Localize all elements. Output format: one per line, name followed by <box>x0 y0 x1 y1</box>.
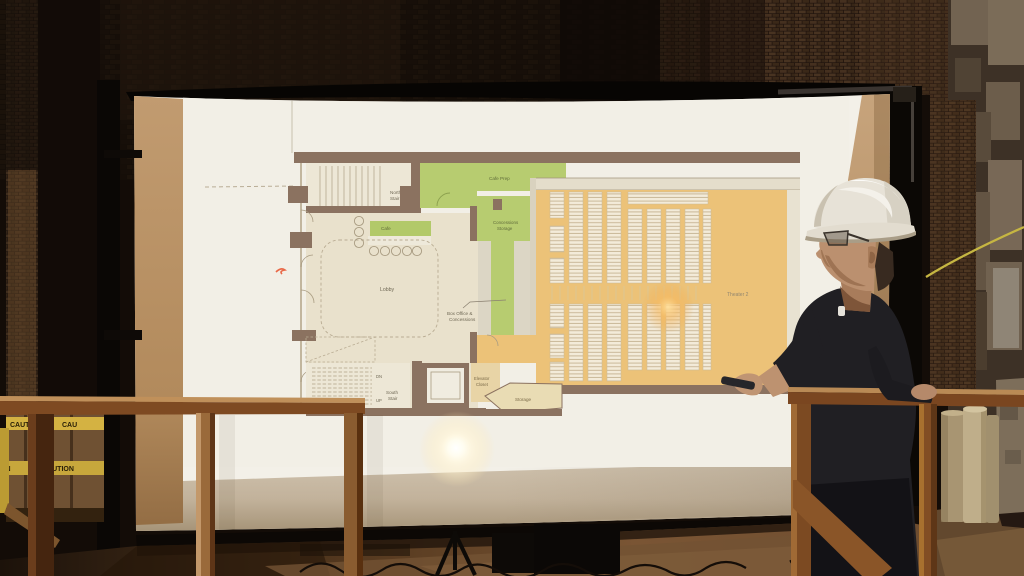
svg-text:Cafe Prep: Cafe Prep <box>489 176 510 181</box>
svg-text:Storage: Storage <box>497 226 513 231</box>
svg-text:North: North <box>390 190 402 195</box>
svg-text:South: South <box>386 390 398 395</box>
svg-text:Closet: Closet <box>476 382 489 387</box>
svg-text:Stair: Stair <box>390 196 400 201</box>
svg-text:Elevator: Elevator <box>474 376 490 381</box>
svg-text:DN: DN <box>376 374 382 379</box>
svg-text:Concessions: Concessions <box>493 220 519 225</box>
svg-text:Concessions: Concessions <box>449 317 476 322</box>
svg-text:Lobby: Lobby <box>380 287 395 293</box>
svg-text:Box Office &: Box Office & <box>447 311 472 316</box>
svg-text:Stair: Stair <box>388 396 398 401</box>
svg-text:UP: UP <box>376 398 382 403</box>
svg-text:CAU: CAU <box>62 422 77 429</box>
svg-text:Storage: Storage <box>515 397 532 402</box>
svg-text:Cafe: Cafe <box>381 226 391 231</box>
svg-text:Theater 2: Theater 2 <box>727 292 749 298</box>
